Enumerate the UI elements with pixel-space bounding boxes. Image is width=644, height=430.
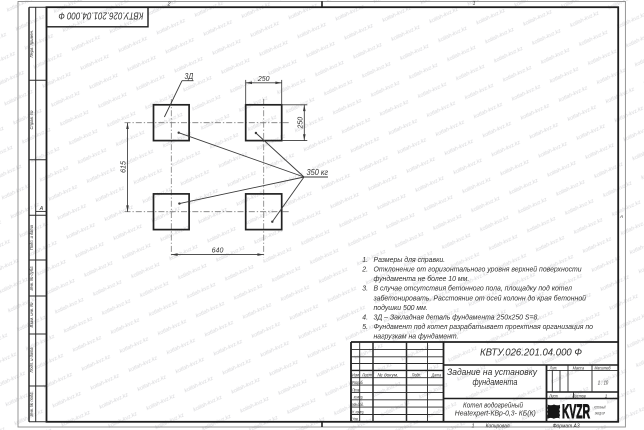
svg-text:Лист: Лист [549, 393, 558, 398]
svg-text:615: 615 [121, 161, 128, 173]
svg-text:Лист: Лист [361, 372, 372, 378]
svg-text:Дата: Дата [431, 372, 441, 378]
svg-text:3.: 3. [362, 286, 368, 293]
svg-text:1: 1 [605, 393, 608, 398]
svg-text:подушки 500 мм.: подушки 500 мм. [374, 304, 428, 312]
svg-text:Нач.отд.: Нач.отд. [352, 402, 364, 408]
svg-text:Разраб.: Разраб. [352, 380, 363, 386]
svg-text:Отклонение от горизонтального: Отклонение от горизонтального уровня вер… [374, 266, 582, 274]
svg-text:фундамента не более 10 мм.: фундамента не более 10 мм. [374, 275, 470, 283]
svg-text:1: 1 [472, 424, 475, 430]
svg-text:№ докум.: № докум. [378, 372, 399, 378]
svg-text:350 кг: 350 кг [307, 168, 329, 177]
svg-text:4.: 4. [362, 314, 368, 321]
svg-text:Пров.: Пров. [352, 387, 360, 393]
svg-text:1 : 10: 1 : 10 [598, 381, 609, 387]
svg-text:Heatexpert-КВр-0,3- КБ(К): Heatexpert-КВр-0,3- КБ(К) [455, 411, 536, 418]
svg-text:Масса: Масса [573, 366, 585, 371]
svg-text:2.: 2. [361, 267, 368, 274]
svg-text:Утв.: Утв. [352, 417, 359, 423]
svg-text:3Д: 3Д [185, 72, 194, 81]
svg-text:нагрузкам на фундамент.: нагрузкам на фундамент. [374, 333, 459, 341]
svg-text:Справ. №: Справ. № [29, 110, 34, 129]
svg-text:фундамента: фундамента [473, 377, 518, 387]
svg-text:Взам. инв. №: Взам. инв. № [29, 302, 34, 327]
svg-text:А: А [619, 214, 623, 219]
svg-text:1: 1 [473, 1, 476, 7]
svg-text:Задание на установку: Задание на установку [447, 367, 538, 377]
svg-text:Листов: Листов [571, 393, 586, 398]
svg-text:контр.: контр. [354, 396, 364, 401]
svg-text:Подп. и дата: Подп. и дата [29, 347, 34, 372]
svg-text:250: 250 [297, 117, 304, 130]
svg-text:Инв. № дубл.: Инв. № дубл. [29, 266, 34, 291]
svg-text:Подп.: Подп. [412, 372, 422, 378]
svg-text:2: 2 [166, 2, 170, 8]
svg-text:КВТУ.026.201.04.000 Ф: КВТУ.026.201.04.000 Ф [480, 347, 582, 358]
svg-text:забетонировать. Расстояние от: забетонировать. Расстояние от осей колон… [373, 294, 587, 302]
svg-text:Инв. № подл.: Инв. № подл. [29, 392, 34, 417]
svg-text:Подп. и дата: Подп. и дата [29, 225, 34, 250]
svg-text:5.: 5. [362, 324, 368, 331]
svg-text:250: 250 [257, 76, 270, 83]
svg-text:Котел водогрейный: Котел водогрейный [463, 401, 523, 409]
svg-text:Копировал: Копировал [486, 424, 510, 430]
svg-text:1.: 1. [362, 257, 368, 264]
svg-text:КВТУ.026.201.04.000 Ф: КВТУ.026.201.04.000 Ф [58, 10, 143, 21]
svg-text:ЗАВОД КЗР: ЗАВОД КЗР [595, 412, 606, 416]
svg-text:KVZR: KVZR [562, 401, 590, 423]
svg-text:Лит.: Лит. [549, 366, 557, 371]
svg-text:Размеры для справки.: Размеры для справки. [374, 256, 446, 264]
svg-text:Изм: Изм [352, 372, 360, 378]
svg-text:3Д – Закладная деталь фундамен: 3Д – Закладная деталь фундамента 250х250… [374, 313, 540, 321]
svg-text:Формат А3: Формат А3 [553, 424, 580, 430]
svg-text:Перв. примен.: Перв. примен. [29, 30, 34, 58]
svg-text:Фундамент под котел разрабатыв: Фундамент под котел разрабатывает проект… [374, 323, 594, 331]
svg-text:640: 640 [212, 248, 224, 255]
svg-text:Н. контр.: Н. контр. [352, 409, 364, 415]
svg-text:В случае отсутствия бетонного: В случае отсутствия бетонного пола, площ… [374, 285, 573, 293]
svg-text:Масштаб: Масштаб [595, 366, 611, 371]
svg-text:КОТЕЛЬНЫЙ: КОТЕЛЬНЫЙ [594, 405, 605, 409]
